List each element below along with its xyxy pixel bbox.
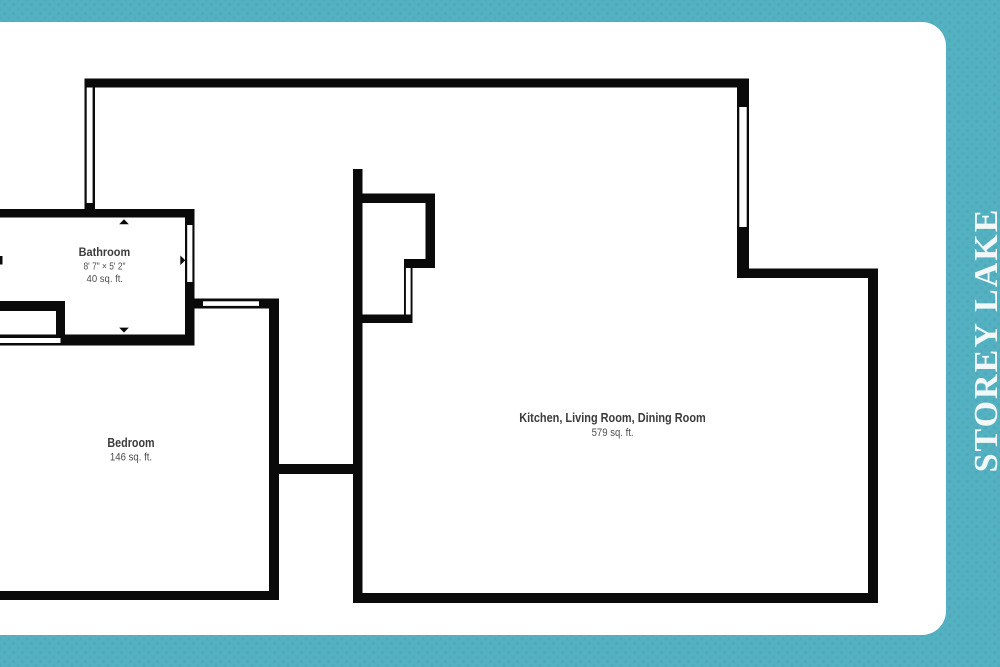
svg-text:Bedroom: Bedroom (107, 435, 154, 450)
svg-text:Kitchen, Living Room, Dining R: Kitchen, Living Room, Dining Room (519, 410, 706, 425)
svg-text:Bathroom: Bathroom (79, 245, 131, 259)
svg-text:579 sq. ft.: 579 sq. ft. (592, 427, 634, 439)
svg-text:8' 7" × 5' 2": 8' 7" × 5' 2" (84, 261, 126, 272)
svg-text:40 sq. ft.: 40 sq. ft. (87, 273, 124, 285)
svg-text:146 sq. ft.: 146 sq. ft. (110, 451, 152, 463)
